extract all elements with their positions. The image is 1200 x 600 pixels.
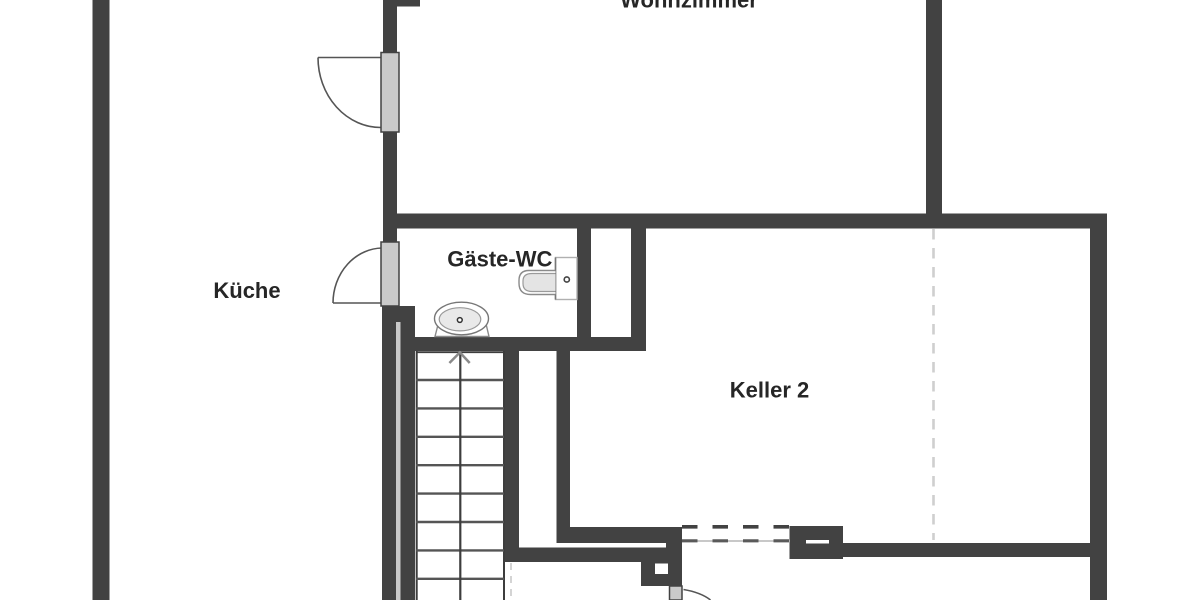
svg-text:Keller 2: Keller 2 bbox=[730, 378, 810, 403]
svg-text:Küche: Küche bbox=[213, 278, 280, 303]
svg-text:Gäste-WC: Gäste-WC bbox=[447, 247, 552, 272]
svg-text:Wohnzimmer: Wohnzimmer bbox=[620, 0, 758, 13]
